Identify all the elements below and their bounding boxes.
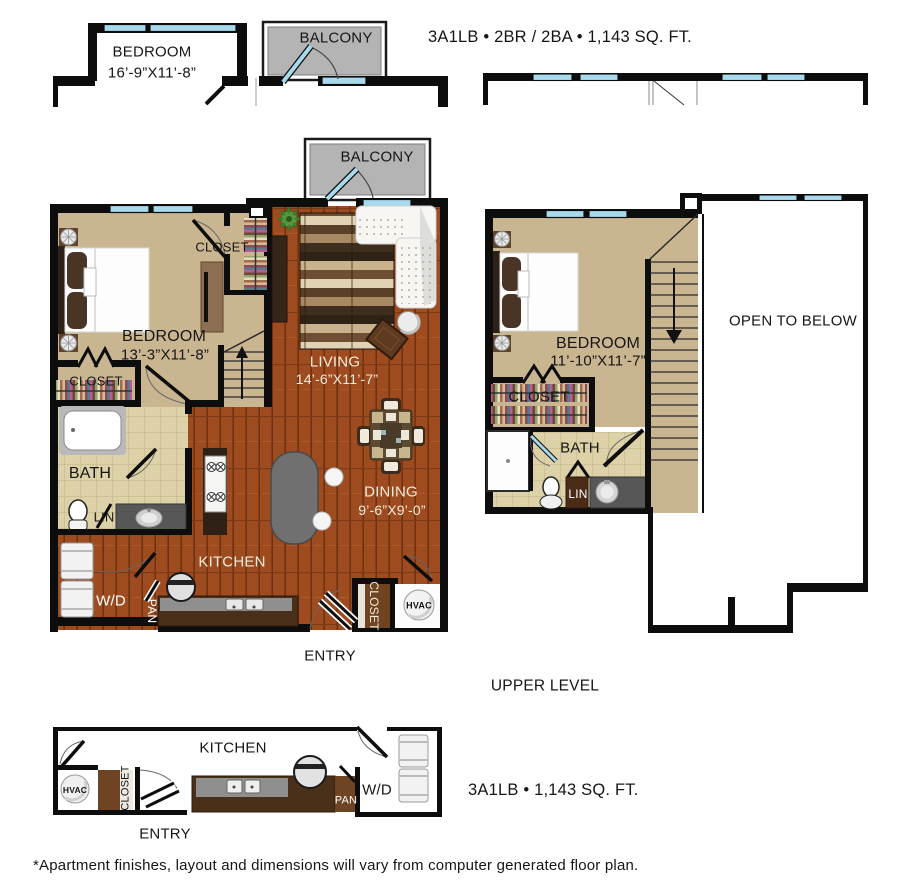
tv-console-icon [272, 236, 287, 322]
label-wd-bottom: W/D [362, 783, 392, 798]
label-closet-bl: CLOSET [69, 375, 122, 388]
pot-icon [167, 573, 195, 601]
disclaimer-footer: *Apartment finishes, layout and dimensio… [33, 858, 638, 873]
label-bath-upper: BATH [560, 441, 600, 456]
floor-plan-graphic [0, 0, 898, 889]
island-icon [271, 452, 318, 544]
label-hvac-bottom: HVAC [63, 786, 87, 795]
label-wd-main: W/D [96, 594, 126, 609]
label-lin-upper: LIN [568, 488, 587, 500]
label-hvac-main: HVAC [406, 602, 432, 611]
label-balcony-main: BALCONY [340, 150, 413, 165]
upper-bed-icon [493, 251, 578, 333]
label-living: LIVING [310, 355, 360, 370]
label-closet-tr: CLOSET [195, 241, 248, 254]
label-bedroom-main-dims: 13’-3”X11’-8” [121, 348, 209, 363]
label-living-dims: 14’-6”X11’-7” [296, 372, 379, 386]
label-bedroom-upper-dims: 11’-10”X11’-7” [550, 354, 646, 369]
floor-plan-page: 3A1LB • 2BR / 2BA • 1,143 SQ. FT. BEDROO… [0, 0, 898, 889]
label-closet-entry: CLOSET [368, 581, 380, 630]
label-dining: DINING [364, 485, 418, 500]
label-bedroom-top-dims: 16’-9”X11’-8” [108, 66, 196, 81]
upper-level-caption: UPPER LEVEL [491, 678, 599, 694]
bottom-plan-title: 3A1LB • 1,143 SQ. FT. [468, 782, 638, 799]
label-entry-bottom: ENTRY [139, 827, 191, 842]
main-dresser-tv-icon [201, 262, 223, 332]
label-entry-main: ENTRY [304, 649, 356, 664]
label-kitchen-main: KITCHEN [198, 555, 265, 570]
label-kitchen-bottom: KITCHEN [199, 741, 266, 756]
stool-icon [325, 468, 343, 486]
label-open-to-below: OPEN TO BELOW [729, 314, 857, 329]
plant-icon [278, 208, 300, 230]
label-pan-bottom: PAN [335, 796, 357, 807]
label-closet-bottom: CLOSET [121, 765, 132, 810]
top-right-unit-fragment [483, 73, 868, 105]
upper-level-plan [485, 193, 868, 633]
plan-title: 3A1LB • 2BR / 2BA • 1,143 SQ. FT. [428, 29, 692, 46]
main-bed-icon [58, 246, 149, 334]
label-pan-main: PAN [146, 599, 158, 623]
toilet-icon [543, 477, 559, 497]
label-closet-upper: CLOSET [508, 390, 569, 405]
pot-icon [294, 756, 326, 788]
label-balcony-top: BALCONY [299, 31, 372, 46]
label-bedroom-top: BEDROOM [113, 45, 192, 60]
label-bedroom-main: BEDROOM [122, 329, 206, 345]
label-lin-main: LIN [94, 511, 115, 524]
toilet-icon [69, 500, 87, 522]
label-dining-dims: 9’-6”X9’-0” [358, 503, 426, 517]
stool-icon [313, 512, 331, 530]
label-bedroom-upper: BEDROOM [556, 336, 640, 352]
washer-dryer-icon [399, 735, 428, 802]
label-bath-main: BATH [69, 466, 111, 482]
